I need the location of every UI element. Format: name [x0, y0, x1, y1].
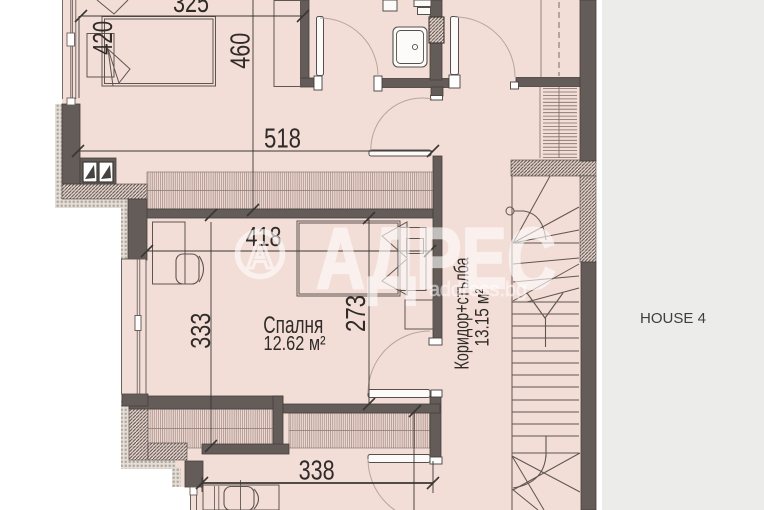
- svg-text:address.bg: address.bg: [429, 279, 527, 301]
- svg-text:460: 460: [225, 33, 256, 69]
- svg-text:HOUSE 4: HOUSE 4: [640, 311, 706, 327]
- svg-text:518: 518: [264, 122, 301, 153]
- svg-text:333: 333: [185, 313, 216, 349]
- svg-text:338: 338: [299, 454, 335, 485]
- svg-text:А: А: [247, 235, 274, 276]
- svg-text:325: 325: [173, 0, 209, 18]
- svg-text:420: 420: [87, 21, 118, 55]
- svg-text:12.62 м²: 12.62 м²: [264, 333, 326, 355]
